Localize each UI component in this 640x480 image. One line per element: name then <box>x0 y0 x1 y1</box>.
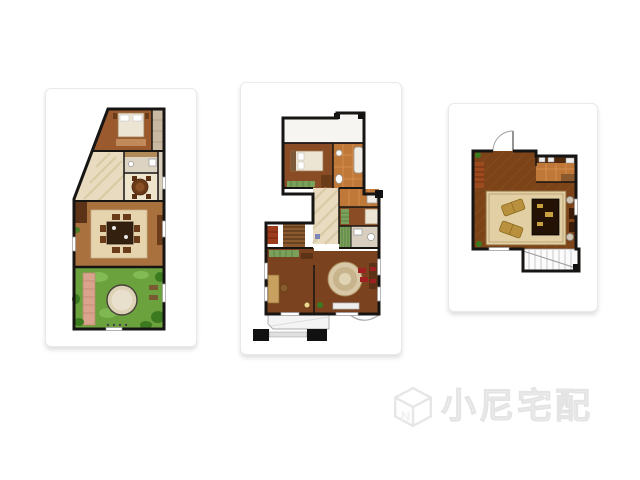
kitchenette <box>536 156 576 182</box>
cube-n-logo-icon: N <box>392 385 434 429</box>
study <box>266 248 314 314</box>
watermark: N 小尼宅配 <box>392 384 593 430</box>
gazebo <box>107 285 137 315</box>
floor-plan-left-drawing <box>46 89 196 346</box>
staircase <box>283 223 305 247</box>
living-room <box>74 201 164 267</box>
seating-area <box>476 191 577 247</box>
bedroom-bottom-right <box>314 251 379 314</box>
bedroom-top-left <box>283 143 333 188</box>
floor-plan-middle-drawing <box>241 83 401 354</box>
bedroom-mid-right <box>339 207 379 226</box>
column <box>307 329 327 341</box>
dining-room <box>124 173 158 201</box>
bathroom-mid-lower <box>339 226 379 248</box>
entry-door <box>493 131 513 151</box>
column <box>253 329 269 341</box>
watermark-text: 小尼宅配 <box>441 390 593 425</box>
plant <box>475 152 481 158</box>
floor-plan-card-middle <box>240 82 402 355</box>
bathroom-top-right <box>333 143 364 188</box>
staircase <box>523 249 580 271</box>
plant <box>476 241 482 247</box>
closet <box>152 109 164 151</box>
cabinet-left <box>266 226 278 244</box>
bathroom-mid-right <box>339 189 379 207</box>
floor-plan-card-right <box>448 103 598 312</box>
floor-plan-right-drawing <box>449 104 597 311</box>
hallway <box>313 188 339 244</box>
stone-path <box>83 273 95 325</box>
floor-plan-card-left <box>45 88 197 347</box>
screen: N 小尼宅配 <box>0 0 640 480</box>
garden <box>72 267 165 329</box>
balcony <box>253 314 379 341</box>
logo-letter: N <box>400 409 411 424</box>
